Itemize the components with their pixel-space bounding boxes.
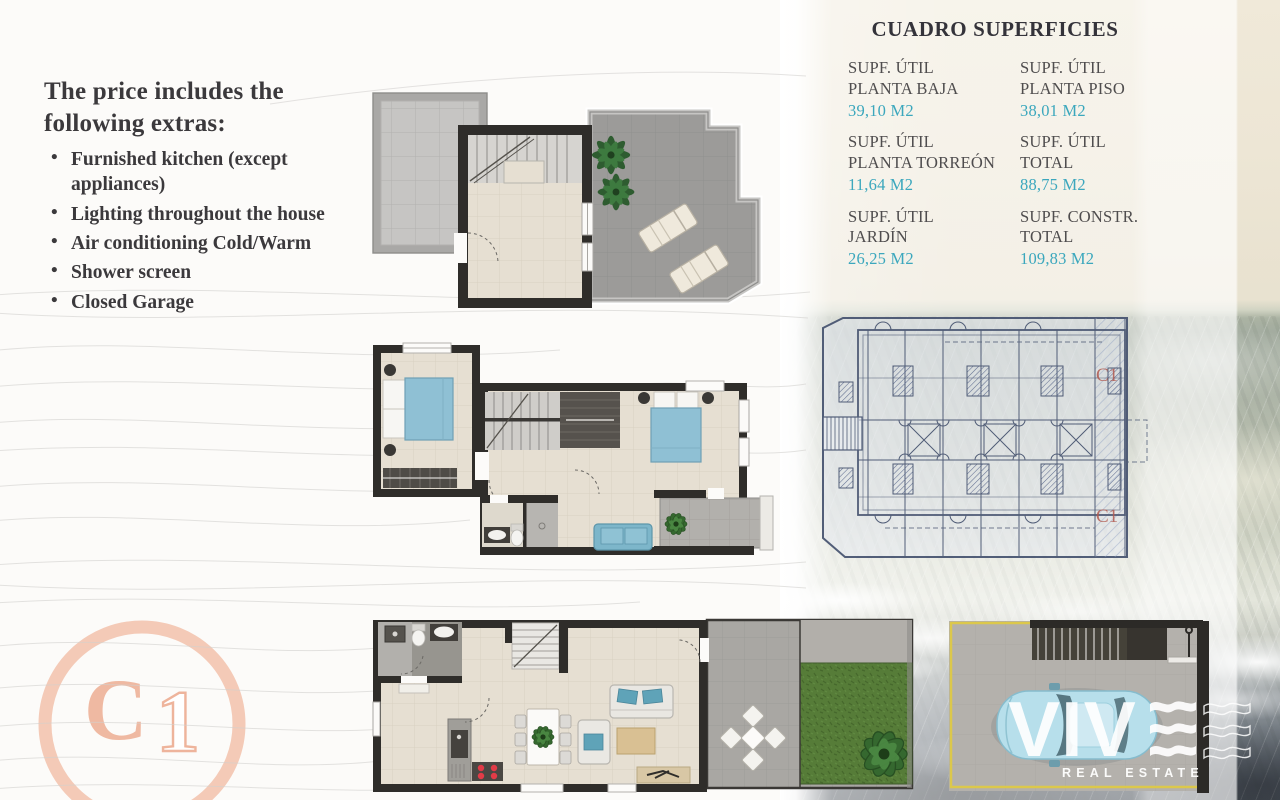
sofa-icon — [610, 685, 673, 718]
surface-value: 11,64 M2 — [848, 175, 1020, 196]
floor-plan-first — [370, 340, 780, 575]
vive-logo: VIV REAL ESTATE — [1008, 685, 1250, 780]
garden-concrete — [800, 620, 912, 663]
door-opening — [401, 676, 427, 683]
brand-tagline: REAL ESTATE — [1062, 766, 1204, 780]
surface-label: SUPF. ÚTIL — [848, 58, 1020, 79]
sofa-icon — [594, 524, 652, 550]
surfaces-title: CUADRO SUPERFICIES — [828, 17, 1162, 42]
extras-item: Furnished kitchen (except appliances) — [44, 147, 356, 198]
bed-icon — [383, 378, 453, 440]
surface-label: JARDÍN — [848, 227, 1020, 248]
door-opening — [700, 638, 709, 662]
garage-plan: VIV REAL ESTATE — [946, 615, 1280, 800]
surface-cell: SUPF. ÚTIL PLANTA PISO 38,01 M2 — [1020, 58, 1160, 121]
door-opening — [454, 233, 467, 263]
surface-label: PLANTA BAJA — [848, 79, 1020, 100]
surface-label: TOTAL — [1020, 227, 1160, 248]
washbasin-icon — [484, 527, 510, 543]
wardrobe-icon — [383, 468, 457, 488]
extras-item: Lighting throughout the house — [44, 202, 356, 227]
window-icon — [373, 702, 380, 736]
stairs-icon — [485, 392, 560, 450]
surface-cell: SUPF. ÚTIL TOTAL 88,75 M2 — [1020, 132, 1160, 195]
surface-cell: SUPF. ÚTIL PLANTA TORREÓN 11,64 M2 — [848, 132, 1020, 195]
side-table-icon — [384, 364, 396, 376]
window-icon — [521, 784, 563, 792]
extras-item: Closed Garage — [44, 290, 356, 315]
entrance-stairs-icon — [823, 417, 862, 450]
surface-label: SUPF. ÚTIL — [848, 207, 1020, 228]
surface-cell: SUPF. ÚTIL JARDÍN 26,25 M2 — [848, 207, 1020, 270]
surface-label: PLANTA PISO — [1020, 79, 1160, 100]
surface-value: 26,25 M2 — [848, 249, 1020, 270]
surface-label: PLANTA TORREÓN — [848, 153, 1020, 174]
dining-table-icon — [515, 709, 571, 765]
side-table-icon — [702, 392, 714, 404]
toilet-icon — [511, 524, 523, 546]
window-icon — [686, 381, 724, 391]
palm-plant-icon — [598, 174, 635, 211]
surface-label: SUPF. ÚTIL — [1020, 132, 1160, 153]
surface-label: SUPF. CONSTR. — [1020, 207, 1160, 228]
side-table-icon — [638, 392, 650, 404]
stairs-icon — [505, 621, 568, 673]
surface-label: TOTAL — [1020, 153, 1160, 174]
side-table-icon — [384, 444, 396, 456]
surface-label: SUPF. ÚTIL — [1020, 58, 1160, 79]
door-opening — [475, 452, 489, 480]
coffee-table-icon — [617, 728, 655, 754]
brand-word: VIV — [1008, 685, 1137, 773]
surface-cell: SUPF. CONSTR. TOTAL 109,83 M2 — [1020, 207, 1160, 270]
palm-plant-icon — [592, 136, 630, 174]
unit-label: C1 — [1096, 506, 1118, 527]
surface-value: 88,75 M2 — [1020, 175, 1160, 196]
armchair-icon — [578, 720, 610, 764]
surface-value: 109,83 M2 — [1020, 249, 1160, 270]
surface-label: SUPF. ÚTIL — [848, 132, 1020, 153]
garage-wall — [1030, 620, 1203, 628]
unit-label: C1 — [1096, 365, 1118, 386]
extras-block: The price includes the following extras:… — [44, 76, 356, 319]
closet-icon — [560, 392, 620, 448]
kitchen-counter-icon — [448, 719, 471, 781]
brochure-page: C 1 The price includes the following ext… — [0, 0, 1280, 800]
tv-bench-icon — [637, 767, 690, 783]
extras-heading: The price includes the following extras: — [44, 76, 356, 139]
floor-plan-torreon — [368, 85, 768, 317]
surface-value: 38,01 M2 — [1020, 101, 1160, 122]
surface-value: 39,10 M2 — [848, 101, 1020, 122]
washbasin-icon — [430, 624, 458, 641]
window-icon — [608, 784, 636, 792]
brand-e-waves-icon — [1150, 701, 1196, 756]
site-plan: C1 C1 — [795, 312, 1155, 564]
floor-plan-ground — [371, 616, 919, 800]
extras-list: Furnished kitchen (except appliances) Li… — [44, 147, 356, 315]
brand-e-outline-icon — [1204, 703, 1250, 758]
extras-item: Air conditioning Cold/Warm — [44, 231, 356, 256]
toilet-icon — [412, 624, 425, 646]
surface-cell: SUPF. ÚTIL PLANTA BAJA 39,10 M2 — [848, 58, 1020, 121]
door-opening — [708, 488, 724, 499]
surfaces-table: SUPF. ÚTIL PLANTA BAJA 39,10 M2 SUPF. ÚT… — [848, 58, 1160, 270]
extras-item: Shower screen — [44, 260, 356, 285]
stove-icon — [472, 762, 503, 781]
door-opening — [490, 495, 508, 503]
